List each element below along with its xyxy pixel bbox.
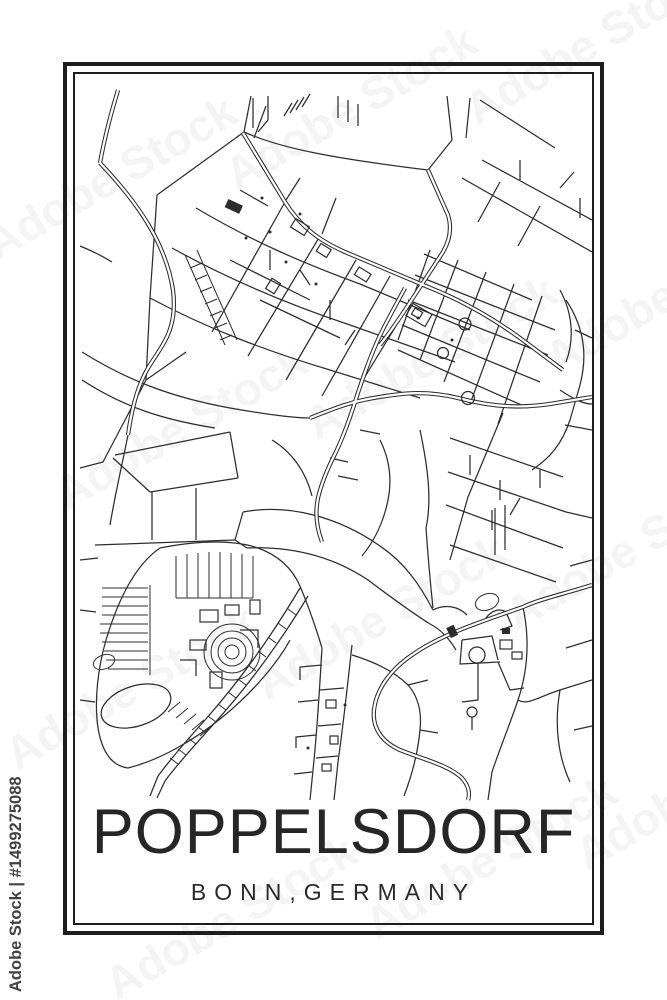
watermark-stock-id: Adobe Stock | #1499275088 — [7, 776, 26, 992]
map-minor-roads-north — [150, 94, 592, 470]
poster-page: Adobe Stock Adobe Stock Adobe Stock Adob… — [0, 0, 667, 1000]
map-railway — [150, 250, 308, 798]
map-area — [75, 74, 592, 923]
poster-title: POPPELSDORF — [63, 801, 604, 864]
map-minor-roads-south — [80, 246, 592, 800]
poster-subtitle: BONN,GERMANY — [63, 881, 604, 904]
city-map-graphic — [75, 74, 592, 923]
